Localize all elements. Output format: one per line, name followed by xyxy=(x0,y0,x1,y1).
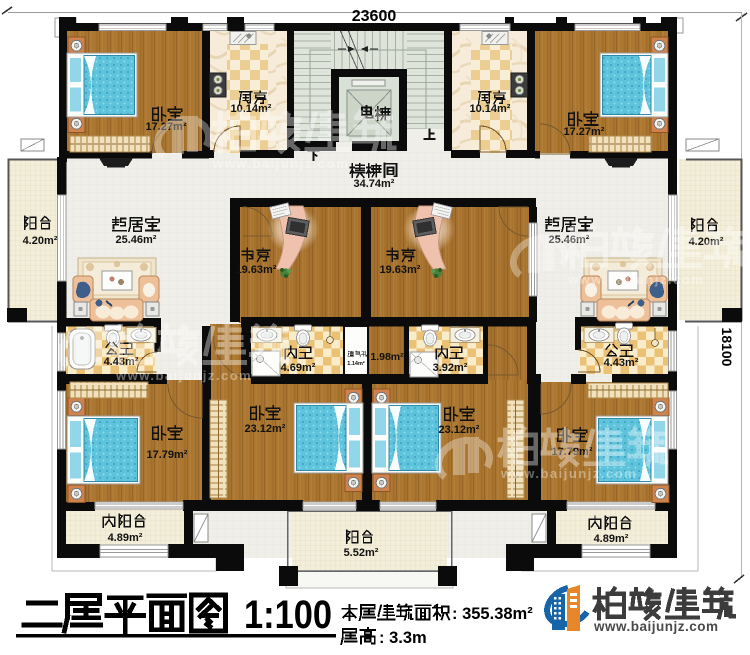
svg-text:4.20m²: 4.20m² xyxy=(23,235,58,247)
svg-text:: 355.38m²: : 355.38m² xyxy=(452,605,533,623)
svg-text:10.14m²: 10.14m² xyxy=(470,103,511,115)
svg-text:19.63m²: 19.63m² xyxy=(380,264,421,276)
svg-text:17.79m²: 17.79m² xyxy=(147,449,188,461)
svg-text:23.12m²: 23.12m² xyxy=(245,423,286,435)
svg-text:3.92m²: 3.92m² xyxy=(433,362,468,374)
svg-text:4.69m²: 4.69m² xyxy=(281,362,316,374)
svg-text:1.14m²: 1.14m² xyxy=(347,360,365,367)
svg-text:: 3.3m: : 3.3m xyxy=(379,629,427,647)
svg-text:1.98m²: 1.98m² xyxy=(370,351,404,363)
svg-text:19.63m²: 19.63m² xyxy=(236,264,277,276)
svg-text:4.43m²: 4.43m² xyxy=(604,357,639,369)
svg-text:www.baijunjz.com: www.baijunjz.com xyxy=(500,466,637,481)
svg-text:www.baijunjz.com: www.baijunjz.com xyxy=(593,619,719,634)
svg-text:18100: 18100 xyxy=(719,328,735,367)
svg-text:17.27m²: 17.27m² xyxy=(564,126,605,138)
svg-text:23600: 23600 xyxy=(352,8,397,25)
svg-text:www.baijunjz.com: www.baijunjz.com xyxy=(115,368,252,383)
svg-text:23.12m²: 23.12m² xyxy=(439,424,480,436)
svg-text:4.89m²: 4.89m² xyxy=(594,533,629,545)
svg-text:1:100: 1:100 xyxy=(244,593,332,637)
svg-text:34.74m²: 34.74m² xyxy=(354,178,395,190)
svg-text:25.46m²: 25.46m² xyxy=(116,234,157,246)
svg-text:www.baijunjz.com: www.baijunjz.com xyxy=(212,156,349,171)
svg-text:www.baijunjz.com: www.baijunjz.com xyxy=(567,272,704,287)
svg-text:5.52m²: 5.52m² xyxy=(344,547,379,559)
svg-text:4.89m²: 4.89m² xyxy=(108,532,143,544)
